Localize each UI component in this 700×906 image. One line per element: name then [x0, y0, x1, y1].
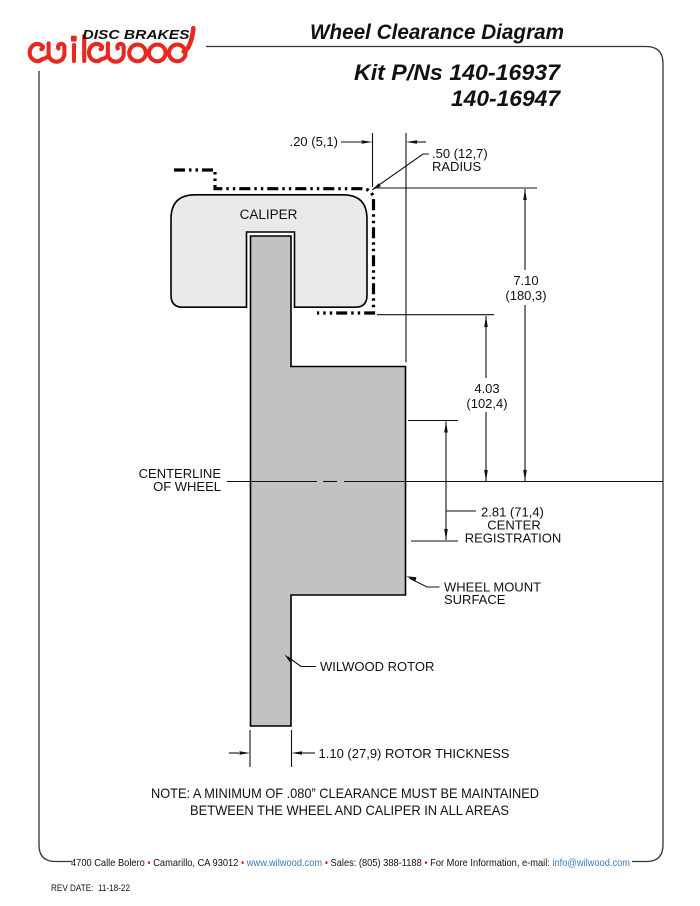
svg-text:4700 Calle Bolero • Camarillo,: 4700 Calle Bolero • Camarillo, CA 93012 …	[71, 857, 630, 869]
svg-text:OF WHEEL: OF WHEEL	[153, 479, 221, 494]
svg-text:Kit P/Ns 140-16937: Kit P/Ns 140-16937	[354, 60, 562, 85]
svg-text:DISC BRAKES: DISC BRAKES	[83, 27, 190, 42]
svg-text:7.10: 7.10	[513, 273, 538, 288]
svg-text:CALIPER: CALIPER	[240, 207, 298, 222]
svg-text:REV DATE: 11-18-22: REV DATE: 11-18-22	[51, 883, 130, 893]
svg-text:NOTE: A MINIMUM OF .080” CLEAR: NOTE: A MINIMUM OF .080” CLEARANCE MUST …	[151, 785, 539, 801]
svg-text:WILWOOD ROTOR: WILWOOD ROTOR	[320, 659, 434, 674]
svg-text:(102,4): (102,4)	[466, 396, 507, 411]
svg-text:RADIUS: RADIUS	[432, 159, 481, 174]
svg-text:.20 (5,1): .20 (5,1)	[290, 134, 338, 149]
svg-text:BETWEEN THE WHEEL AND CALIPER: BETWEEN THE WHEEL AND CALIPER IN ALL ARE…	[190, 802, 509, 818]
svg-text:Wheel Clearance Diagram: Wheel Clearance Diagram	[310, 21, 564, 44]
svg-text:1.10 (27,9) ROTOR THICKNESS: 1.10 (27,9) ROTOR THICKNESS	[319, 746, 510, 761]
svg-text:REGISTRATION: REGISTRATION	[465, 531, 562, 546]
svg-text:SURFACE: SURFACE	[444, 592, 506, 607]
svg-text:4.03: 4.03	[474, 381, 499, 396]
svg-text:(180,3): (180,3)	[505, 288, 546, 303]
svg-text:140-16947: 140-16947	[451, 86, 562, 111]
